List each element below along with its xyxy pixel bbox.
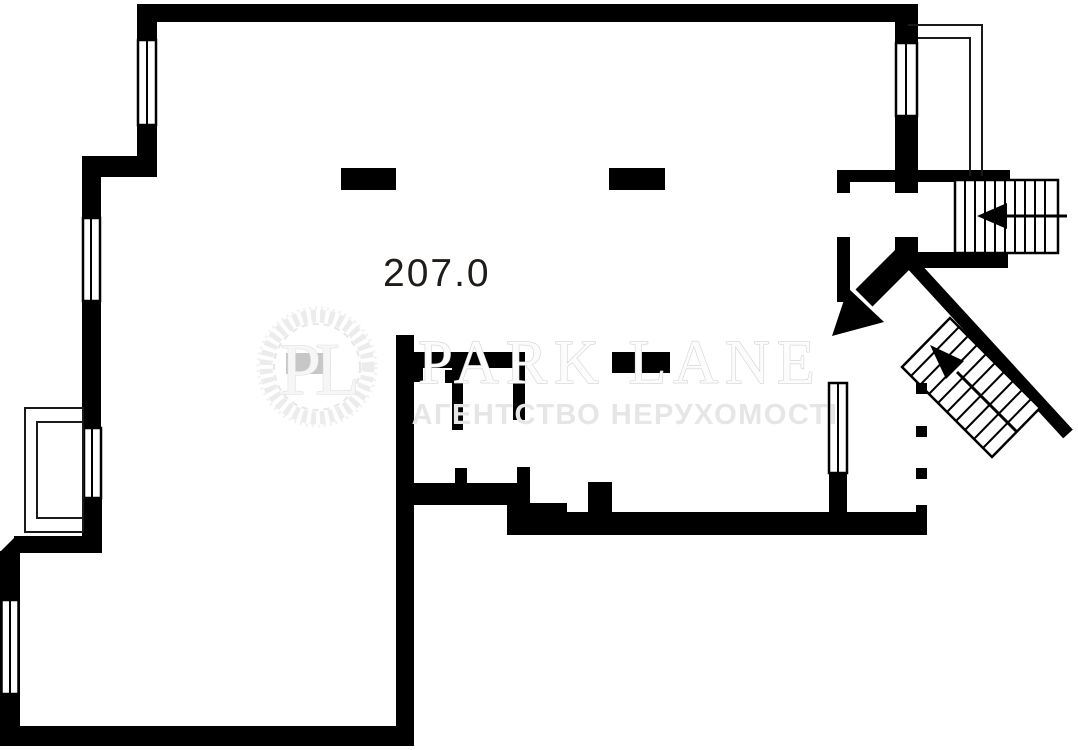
column-pillar bbox=[609, 168, 665, 190]
window-glyph-3 bbox=[84, 428, 101, 498]
wall-segment bbox=[396, 483, 530, 505]
staircase-lower bbox=[832, 254, 1068, 516]
wall-chamfer bbox=[0, 536, 16, 553]
wall-segment bbox=[829, 473, 847, 535]
door-jamb bbox=[837, 182, 850, 193]
area-label: 207.0 bbox=[383, 252, 491, 295]
wall-segment bbox=[82, 301, 101, 428]
floorplan-page: 207.0 PL PARK LANE АГЕНТСТВО НЕРУХОМОСТІ bbox=[0, 0, 1078, 750]
window-glyph-1 bbox=[138, 40, 156, 125]
wall-segment bbox=[507, 503, 567, 535]
balcony-outline-topright-inner bbox=[918, 38, 970, 176]
floorplan-canvas: 207.0 PL PARK LANE АГЕНТСТВО НЕРУХОМОСТІ bbox=[0, 0, 1078, 750]
watermark-wreath-icon: PL bbox=[258, 308, 376, 426]
door-jamb bbox=[455, 468, 467, 483]
watermark-subtitle: АГЕНТСТВО НЕРУХОМОСТІ bbox=[412, 399, 839, 431]
window-glyph-2 bbox=[83, 218, 100, 301]
wall-segment bbox=[14, 536, 102, 553]
watermark-title: PARK LANE bbox=[418, 329, 822, 397]
watermark-monogram: PL bbox=[280, 329, 356, 411]
wall-segment bbox=[588, 482, 612, 512]
wall-segment bbox=[82, 156, 101, 218]
wall-top bbox=[137, 4, 918, 22]
wall-segment bbox=[82, 498, 102, 538]
wall-right bbox=[895, 4, 918, 43]
window-glyph-4 bbox=[2, 600, 19, 694]
wall-segment bbox=[137, 4, 157, 40]
balcony-outline-left-inner bbox=[37, 422, 83, 518]
column-pillar bbox=[341, 168, 396, 190]
wall-segment bbox=[567, 512, 927, 535]
wall-interior-vertical bbox=[396, 335, 414, 746]
window-glyph-5 bbox=[896, 43, 917, 116]
wall-bottom bbox=[0, 726, 413, 746]
door-jamb bbox=[517, 467, 530, 483]
watermark: PL PARK LANE АГЕНТСТВО НЕРУХОМОСТІ bbox=[258, 308, 838, 431]
staircase-upper bbox=[955, 180, 1067, 253]
void-dotted-line bbox=[916, 383, 927, 516]
balcony-outline-left bbox=[25, 408, 83, 532]
